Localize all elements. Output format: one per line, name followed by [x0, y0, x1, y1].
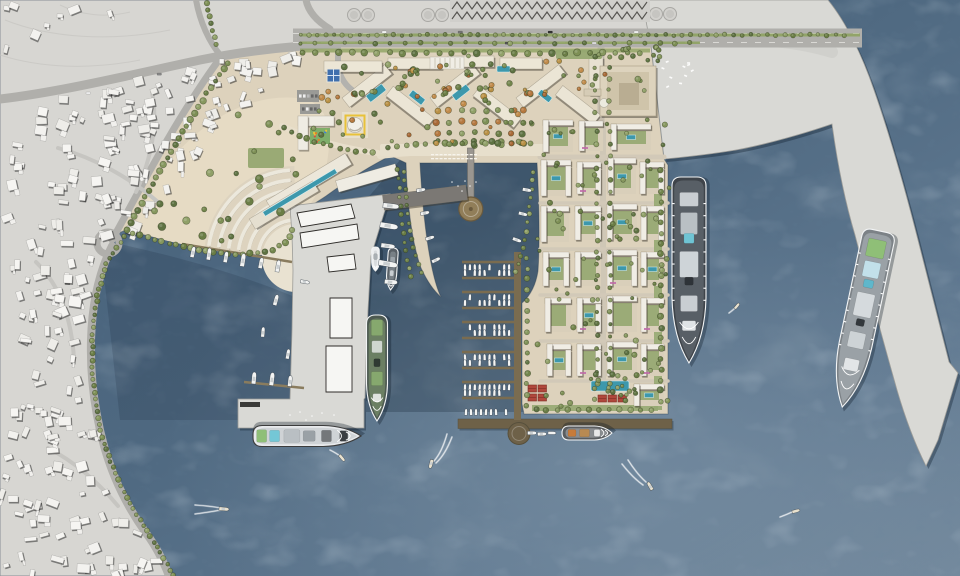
pier-building-outline	[326, 346, 352, 392]
old-town-building	[37, 106, 50, 118]
boat	[508, 330, 511, 336]
boat	[468, 264, 471, 270]
boat	[483, 270, 486, 277]
old-town-building	[91, 176, 103, 188]
old-town-building	[52, 461, 64, 474]
old-town-building	[77, 564, 91, 575]
old-town-building	[41, 265, 52, 277]
boat	[483, 300, 486, 307]
specks	[299, 411, 301, 413]
market-red-roof	[608, 395, 617, 402]
boat	[505, 409, 508, 416]
district-block	[547, 344, 572, 378]
car	[157, 73, 162, 75]
ship-cruise-south-pier	[253, 422, 365, 447]
sun-loungers	[457, 158, 460, 159]
boat	[528, 431, 537, 435]
district-block	[577, 298, 602, 334]
pier-building-outline	[327, 254, 356, 272]
parking-lot	[297, 90, 319, 102]
old-town-building	[150, 122, 159, 129]
old-town-building	[130, 177, 140, 187]
district-block	[608, 158, 637, 196]
boat	[478, 360, 481, 367]
boat	[483, 390, 486, 396]
market-red-roof	[528, 385, 537, 392]
specks	[305, 419, 307, 421]
old-town-building	[234, 62, 243, 71]
specks	[289, 414, 291, 416]
old-town-building	[53, 187, 65, 196]
boat	[464, 390, 467, 396]
car	[634, 31, 639, 33]
old-town-building	[138, 124, 152, 135]
sun-loungers	[440, 158, 443, 159]
boat	[488, 264, 491, 270]
specks	[469, 185, 471, 187]
boat	[503, 384, 506, 390]
sun-loungers	[461, 158, 464, 159]
sun-loungers	[431, 154, 434, 155]
boat	[475, 409, 478, 416]
specks	[321, 412, 323, 414]
specks	[461, 190, 463, 192]
pier-building-outline	[330, 298, 352, 338]
boat	[503, 354, 506, 361]
sun-loungers	[474, 158, 477, 159]
boat	[493, 294, 496, 301]
old-town-building	[252, 67, 263, 76]
old-town-building	[79, 191, 88, 203]
master-plan-rendering	[0, 0, 960, 576]
sun-loungers	[474, 154, 477, 155]
sun-loungers	[465, 158, 468, 159]
sun-loungers	[453, 154, 456, 155]
district-block	[545, 298, 572, 334]
boat	[468, 390, 471, 396]
boat	[464, 300, 467, 306]
old-town-building	[161, 140, 170, 150]
sun-loungers	[457, 154, 460, 155]
sun-loungers	[448, 158, 451, 159]
old-town-building	[86, 476, 96, 487]
district-block	[579, 121, 604, 153]
boat	[478, 300, 481, 306]
specks	[311, 415, 313, 417]
boat	[508, 384, 511, 391]
ship-expedition-green	[367, 315, 392, 425]
car	[548, 31, 553, 33]
boat	[503, 300, 506, 306]
boat	[498, 300, 501, 306]
sun-loungers	[444, 154, 447, 155]
boat	[473, 354, 476, 360]
boat	[498, 330, 501, 336]
old-town-building	[14, 260, 21, 271]
sun-loungers	[453, 158, 456, 159]
district-block	[607, 250, 638, 288]
car	[86, 92, 91, 94]
boat	[468, 294, 471, 301]
boat	[498, 390, 501, 397]
boat	[469, 360, 472, 366]
old-town-building	[118, 519, 129, 529]
boat	[473, 330, 476, 337]
parking-lot	[300, 104, 320, 114]
sun-loungers	[444, 158, 447, 159]
district-block	[543, 120, 574, 154]
specks	[475, 181, 477, 183]
sun-loungers	[470, 158, 473, 159]
boat	[508, 360, 511, 366]
old-town-building	[82, 236, 96, 245]
boat	[478, 390, 481, 397]
old-town-building	[64, 274, 74, 284]
car	[382, 31, 387, 33]
old-town-building	[46, 447, 59, 455]
boat	[493, 390, 496, 396]
boat	[494, 409, 497, 416]
boat	[480, 409, 483, 416]
sun-loungers	[431, 158, 434, 159]
boat	[469, 409, 472, 416]
boat	[483, 354, 486, 360]
boat	[537, 432, 546, 436]
boat	[508, 270, 511, 277]
old-town-building	[45, 325, 51, 337]
boat	[548, 431, 556, 434]
boat	[463, 360, 466, 367]
master-plan-viewport	[0, 0, 960, 576]
boat	[468, 324, 471, 330]
specks	[457, 185, 459, 187]
old-town-building	[10, 408, 19, 418]
boat	[498, 270, 501, 277]
boat	[473, 270, 476, 276]
old-town-building	[129, 114, 138, 122]
specks	[451, 181, 453, 183]
boat	[464, 409, 467, 416]
ship-cruise-east-dock	[672, 177, 710, 367]
sun-loungers	[435, 154, 438, 155]
specks	[333, 414, 335, 416]
boat	[503, 270, 506, 276]
district-block	[611, 124, 652, 152]
boat	[464, 270, 467, 277]
sun-loungers	[461, 154, 464, 155]
boat	[490, 409, 493, 416]
old-town-building	[184, 132, 197, 139]
boat	[484, 409, 487, 416]
market-red-roof	[538, 385, 547, 392]
boat	[488, 300, 491, 306]
boat	[508, 300, 511, 306]
old-town-building	[60, 241, 74, 248]
sun-loungers	[440, 154, 443, 155]
boat	[488, 360, 491, 367]
sun-loungers	[435, 158, 438, 159]
boat	[483, 330, 486, 337]
boat	[473, 384, 476, 390]
boat	[488, 390, 491, 397]
sawtooth-sheds	[450, 0, 650, 22]
sun-loungers	[465, 154, 468, 155]
sun-loungers	[448, 154, 451, 155]
car	[592, 42, 597, 44]
compass-fountain-plaza	[327, 69, 340, 82]
market-red-roof	[598, 395, 607, 402]
old-town-building	[58, 95, 69, 105]
boat	[493, 330, 496, 336]
specks	[464, 180, 466, 182]
boat	[478, 330, 481, 337]
boat	[503, 330, 506, 337]
sun-loungers	[470, 154, 473, 155]
boat	[493, 360, 496, 366]
old-town-building	[8, 496, 19, 504]
boat	[478, 270, 481, 277]
